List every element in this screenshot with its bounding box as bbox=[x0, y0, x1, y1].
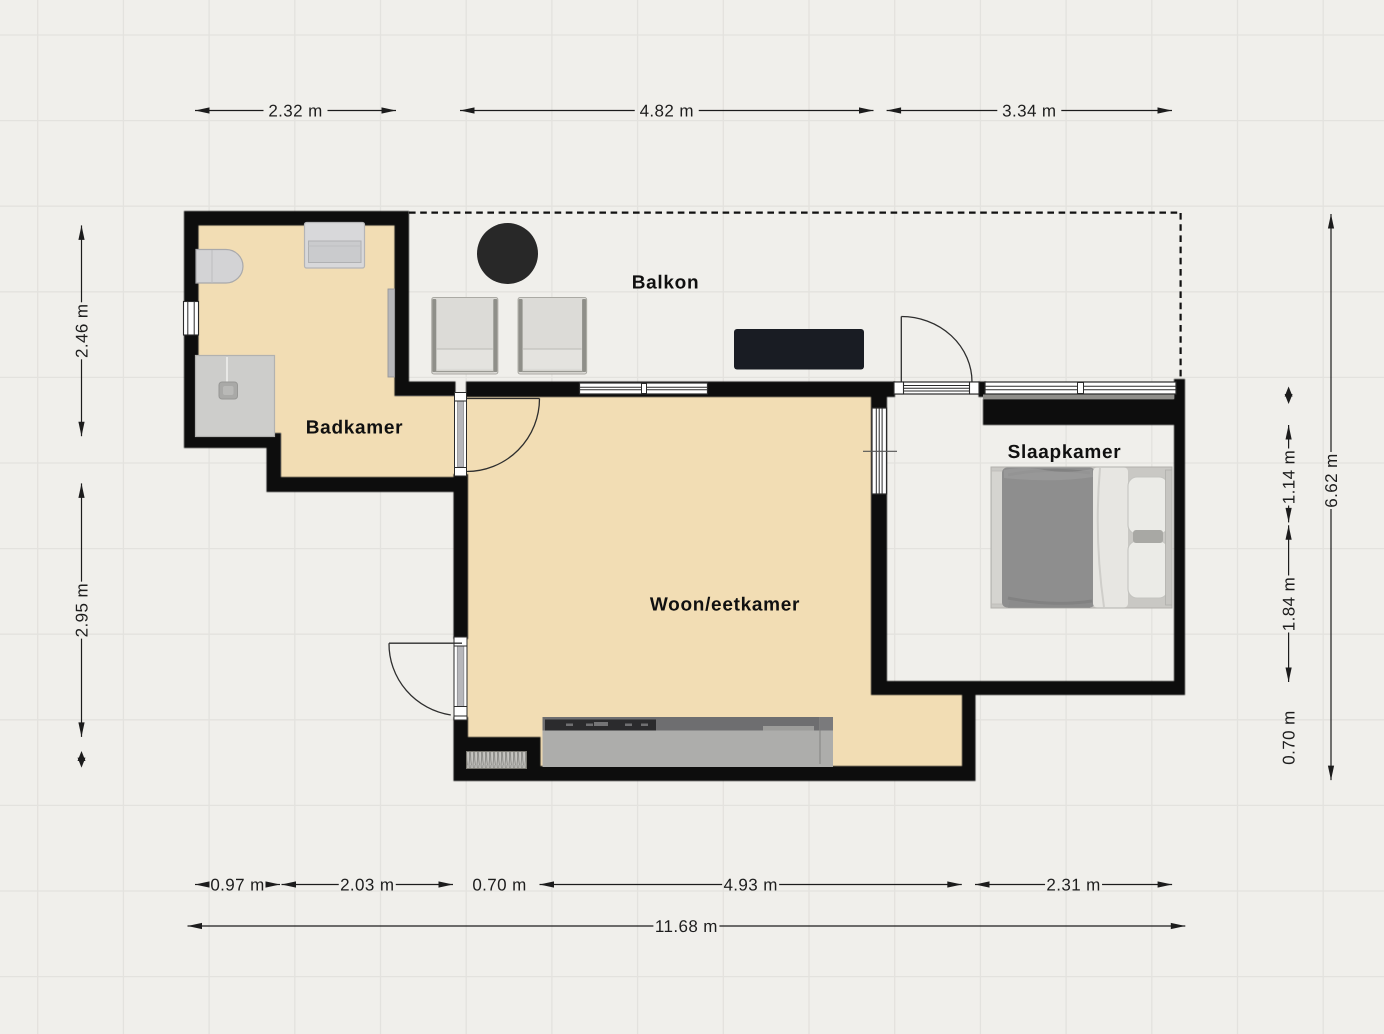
svg-text:4.82 m: 4.82 m bbox=[640, 102, 694, 121]
svg-text:2.46 m: 2.46 m bbox=[73, 304, 92, 358]
svg-text:0.70 m: 0.70 m bbox=[1280, 710, 1299, 764]
svg-text:Woon/eetkamer: Woon/eetkamer bbox=[650, 595, 800, 616]
svg-text:1.14 m: 1.14 m bbox=[1280, 450, 1299, 504]
svg-text:2.32 m: 2.32 m bbox=[268, 102, 322, 121]
svg-text:2.95 m: 2.95 m bbox=[73, 583, 92, 637]
svg-text:0.70 m: 0.70 m bbox=[472, 876, 526, 895]
svg-text:2.31 m: 2.31 m bbox=[1046, 876, 1100, 895]
svg-text:4.93 m: 4.93 m bbox=[723, 876, 777, 895]
svg-text:3.34 m: 3.34 m bbox=[1002, 102, 1056, 121]
svg-text:11.68 m: 11.68 m bbox=[655, 917, 718, 936]
svg-text:2.03 m: 2.03 m bbox=[340, 876, 394, 895]
svg-text:Badkamer: Badkamer bbox=[306, 418, 403, 439]
svg-text:1.84 m: 1.84 m bbox=[1280, 577, 1299, 631]
svg-text:6.62 m: 6.62 m bbox=[1322, 453, 1341, 507]
svg-text:Slaapkamer: Slaapkamer bbox=[1008, 442, 1122, 463]
svg-text:Balkon: Balkon bbox=[632, 273, 700, 294]
svg-text:0.97 m: 0.97 m bbox=[210, 876, 264, 895]
